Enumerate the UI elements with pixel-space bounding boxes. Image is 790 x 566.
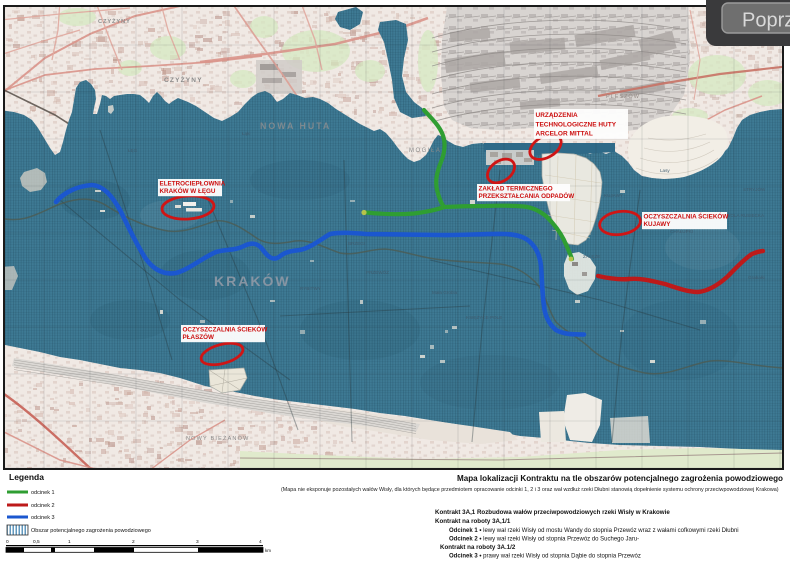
svg-text:OCZYSZCZALNIA ŚCIEKÓW: OCZYSZCZALNIA ŚCIEKÓW [183,324,268,333]
svg-text:KSIĘŻYCE POLE: KSIĘŻYCE POLE [466,314,502,320]
svg-text:Poprz: Poprz [742,10,790,32]
svg-text:KRAKÓW: KRAKÓW [214,272,291,289]
svg-text:2: 2 [132,539,135,545]
svg-text:4: 4 [259,539,262,545]
svg-text:WOLA RUSIECKA: WOLA RUSIECKA [726,213,765,218]
svg-text:Kontrakt na roboty 3A,1/1: Kontrakt na roboty 3A,1/1 [435,518,511,525]
svg-text:ZALĘŻE: ZALĘŻE [583,253,600,259]
svg-text:Kontrakt na roboty 3A.1/2: Kontrakt na roboty 3A.1/2 [440,544,516,551]
svg-text:3: 3 [196,539,199,545]
svg-text:(Mapa nie eksponuje pozostałyc: (Mapa nie eksponuje pozostałych wałów Wi… [281,487,779,493]
svg-text:odcinek 1: odcinek 1 [31,490,55,496]
svg-text:Odcinek 1 • lewy wał rzeki Wi: Odcinek 1 • lewy wał rzeki Wisły od most… [449,528,739,534]
svg-text:Obszar potencjalnego zagrożeni: Obszar potencjalnego zagrożenia powodzio… [31,528,151,534]
svg-text:NOWY BIEŻANÓW: NOWY BIEŻANÓW [186,435,249,442]
svg-text:Kontrakt 3A,1 Rozbudowa wałów: Kontrakt 3A,1 Rozbudowa wałów przeciwpow… [435,509,670,516]
svg-text:BRZEGI: BRZEGI [348,241,365,246]
svg-text:ZAKŁAD TERMICZNEGO: ZAKŁAD TERMICZNEGO [479,185,553,192]
svg-text:odcinek 2: odcinek 2 [31,503,55,509]
svg-text:Mapa lokalizacji Kontraktu na: Mapa lokalizacji Kontraktu na tle obszar… [457,474,783,483]
svg-text:KUJAWY: KUJAWY [644,221,672,228]
svg-text:Łąki: Łąki [242,131,250,136]
svg-text:Lasy: Lasy [660,168,670,173]
svg-text:odcinek 3: odcinek 3 [31,515,55,521]
svg-text:0,5: 0,5 [33,539,40,545]
svg-text:KUJAWY: KUJAWY [604,193,623,198]
svg-text:Mała Grobla: Mała Grobla [432,290,457,295]
svg-text:PLESZÓW: PLESZÓW [606,93,640,100]
svg-text:CZYŻYNY: CZYŻYNY [164,76,203,84]
svg-text:km: km [265,548,271,553]
svg-text:PŁASZÓW: PŁASZÓW [183,332,215,341]
svg-text:TECHNOLOGICZNE HUTY: TECHNOLOGICZNE HUTY [536,121,617,128]
svg-text:1: 1 [68,539,71,545]
svg-text:PRZEWÓZ: PRZEWÓZ [366,269,389,275]
svg-text:CZYŻYNY: CZYŻYNY [98,18,131,25]
svg-text:RYBITWY: RYBITWY [300,286,321,291]
svg-text:STRYJÓW: STRYJÓW [743,186,766,192]
svg-text:Odcinek 2 • lewy wał rzeki Wi: Odcinek 2 • lewy wał rzeki Wisły od stop… [449,537,639,543]
svg-text:NOWA HUTA: NOWA HUTA [260,121,331,131]
svg-text:0: 0 [6,539,9,545]
svg-text:ELETROCIEPŁOWNIA: ELETROCIEPŁOWNIA [160,180,226,187]
svg-text:ŁĘG: ŁĘG [128,148,138,153]
svg-text:URZĄDZENIA: URZĄDZENIA [536,112,579,119]
svg-text:Odcinek 3 • prawy wał rzeki W: Odcinek 3 • prawy wał rzeki Wisły od sto… [449,554,641,560]
svg-text:KRAKÓW W ŁĘGU: KRAKÓW W ŁĘGU [160,186,216,195]
svg-text:CHAŁUPKI: CHAŁUPKI [670,229,693,234]
svg-text:PRZEKSZTAŁCANIA ODPADÓW: PRZEKSZTAŁCANIA ODPADÓW [479,191,575,200]
svg-text:MOGIŁA: MOGIŁA [409,148,441,154]
svg-text:OCZYSZCZALNIA ŚCIEKÓW: OCZYSZCZALNIA ŚCIEKÓW [644,211,729,220]
svg-text:Legenda: Legenda [9,472,44,482]
svg-text:ARCELOR MITTAL: ARCELOR MITTAL [536,131,593,138]
svg-text:Grabałki: Grabałki [748,275,765,280]
